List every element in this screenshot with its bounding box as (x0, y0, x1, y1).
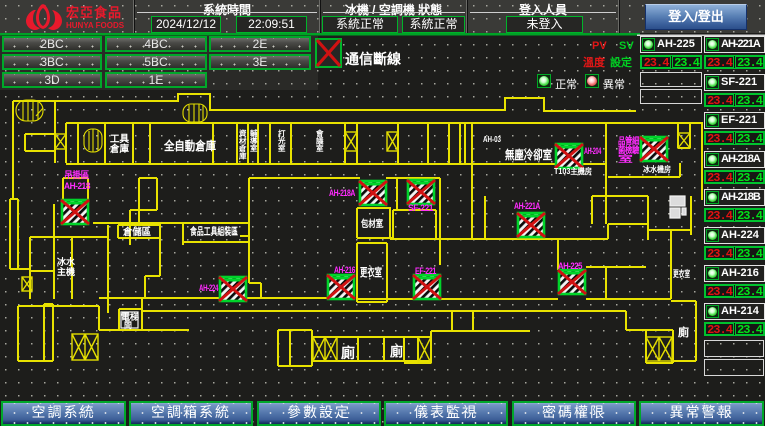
svg-text:冰水主機: 冰水主機 (57, 256, 76, 277)
svg-text:全自動倉庫: 全自動倉庫 (163, 138, 216, 153)
svg-text:資材倉庫: 資材倉庫 (238, 128, 247, 161)
svg-text:間: 間 (124, 321, 132, 330)
svg-text:更衣室: 更衣室 (673, 268, 690, 279)
svg-text:AH-224: AH-224 (199, 283, 218, 293)
svg-text:倉庫: 倉庫 (109, 143, 130, 155)
svg-text:廁: 廁 (341, 345, 355, 361)
svg-text:AH-03: AH-03 (483, 134, 501, 144)
svg-text:AH-216: AH-216 (334, 265, 355, 275)
svg-text:AH-221A: AH-221A (514, 201, 541, 211)
svg-text:會議室: 會議室 (316, 128, 324, 153)
svg-text:AH-225: AH-225 (558, 261, 582, 271)
svg-text:HUNYA FOODS: HUNYA FOODS (66, 21, 125, 30)
svg-text:倉儲區: 倉儲區 (122, 226, 151, 238)
svg-text:SF-221: SF-221 (408, 203, 433, 213)
svg-text:宏亞食品: 宏亞食品 (66, 5, 122, 20)
svg-text:無塵冷卻室: 無塵冷卻室 (505, 147, 552, 162)
svg-text:AH-218A: AH-218A (329, 188, 356, 198)
svg-text:打光室: 打光室 (277, 128, 286, 153)
svg-text:包材室: 包材室 (360, 218, 383, 230)
svg-text:輔導室: 輔導室 (250, 128, 258, 153)
svg-text:食品工具組裝區: 食品工具組裝區 (189, 225, 238, 238)
svg-text:AH-204: AH-204 (584, 146, 601, 156)
svg-text:更衣室: 更衣室 (360, 265, 382, 279)
svg-text:EF-221: EF-221 (415, 266, 436, 276)
svg-text:廁: 廁 (390, 344, 403, 359)
svg-text:廁: 廁 (678, 325, 689, 339)
svg-text:T103主機房: T103主機房 (554, 166, 592, 176)
svg-text:冰水機房: 冰水機房 (643, 164, 671, 174)
